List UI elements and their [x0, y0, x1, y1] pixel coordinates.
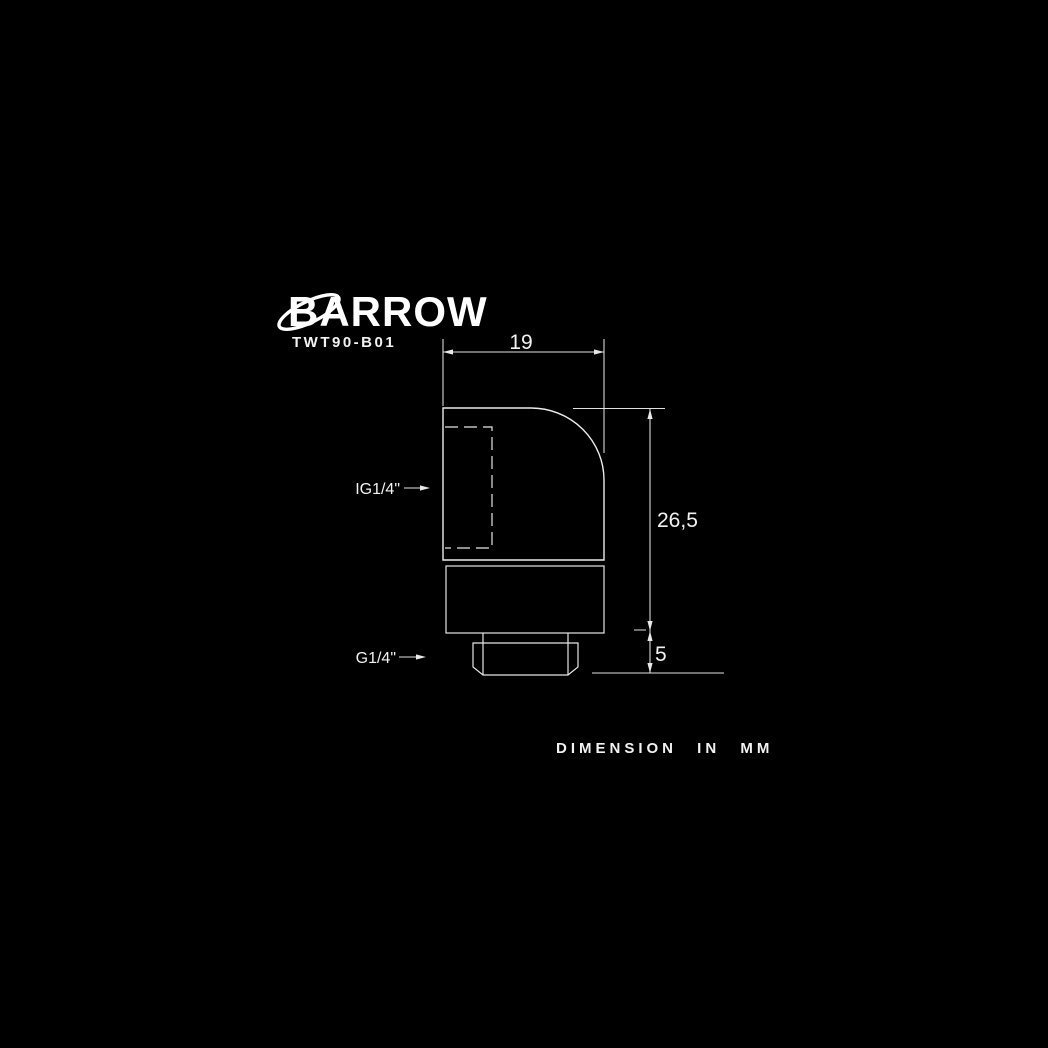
label-inner-thread-text: IG1/4" — [355, 481, 400, 498]
dim-body-height: 26,5 — [573, 409, 698, 632]
inner-thread-hidden-lines — [445, 427, 492, 548]
dim-body-height-label: 26,5 — [657, 509, 698, 532]
label-inner-thread: IG1/4" — [355, 481, 430, 498]
thread-neck-lines — [483, 633, 568, 675]
fitting-body-outline — [443, 408, 604, 560]
dim-width: 19 — [443, 331, 604, 453]
dimension-unit-note: DIMENSION IN MM — [556, 740, 773, 757]
dim-width-label: 19 — [509, 331, 532, 354]
dim-thread-length-label: 5 — [655, 643, 667, 666]
technical-drawing: 19 26,5 5 IG1/4" G1/4" — [0, 0, 1048, 1048]
page-canvas: BARROW TWT90-B01 19 — [0, 0, 1048, 1048]
knurl-ring — [446, 566, 604, 633]
label-outer-thread: G1/4" — [356, 650, 426, 667]
label-outer-thread-text: G1/4" — [356, 650, 396, 667]
male-thread-outline — [473, 643, 578, 675]
dim-thread-length: 5 — [592, 630, 724, 673]
